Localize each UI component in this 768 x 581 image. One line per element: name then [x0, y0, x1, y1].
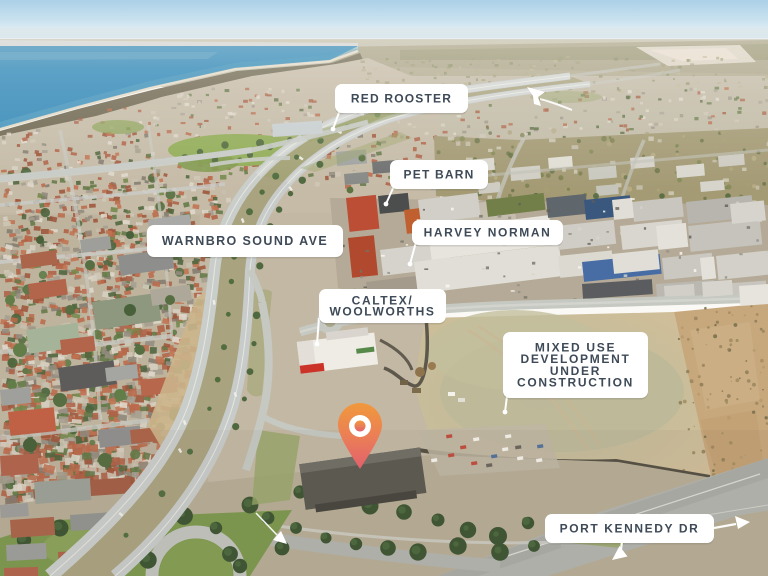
svg-text:PET BARN: PET BARN: [404, 168, 475, 182]
svg-text:WARNBRO SOUND AVE: WARNBRO SOUND AVE: [162, 234, 328, 248]
svg-text:PORT KENNEDY DR: PORT KENNEDY DR: [560, 522, 700, 536]
svg-text:CONSTRUCTION: CONSTRUCTION: [517, 375, 634, 389]
svg-text:WOOLWORTHS: WOOLWORTHS: [330, 305, 436, 319]
svg-text:HARVEY NORMAN: HARVEY NORMAN: [424, 226, 552, 240]
svg-text:RED ROOSTER: RED ROOSTER: [351, 92, 452, 106]
